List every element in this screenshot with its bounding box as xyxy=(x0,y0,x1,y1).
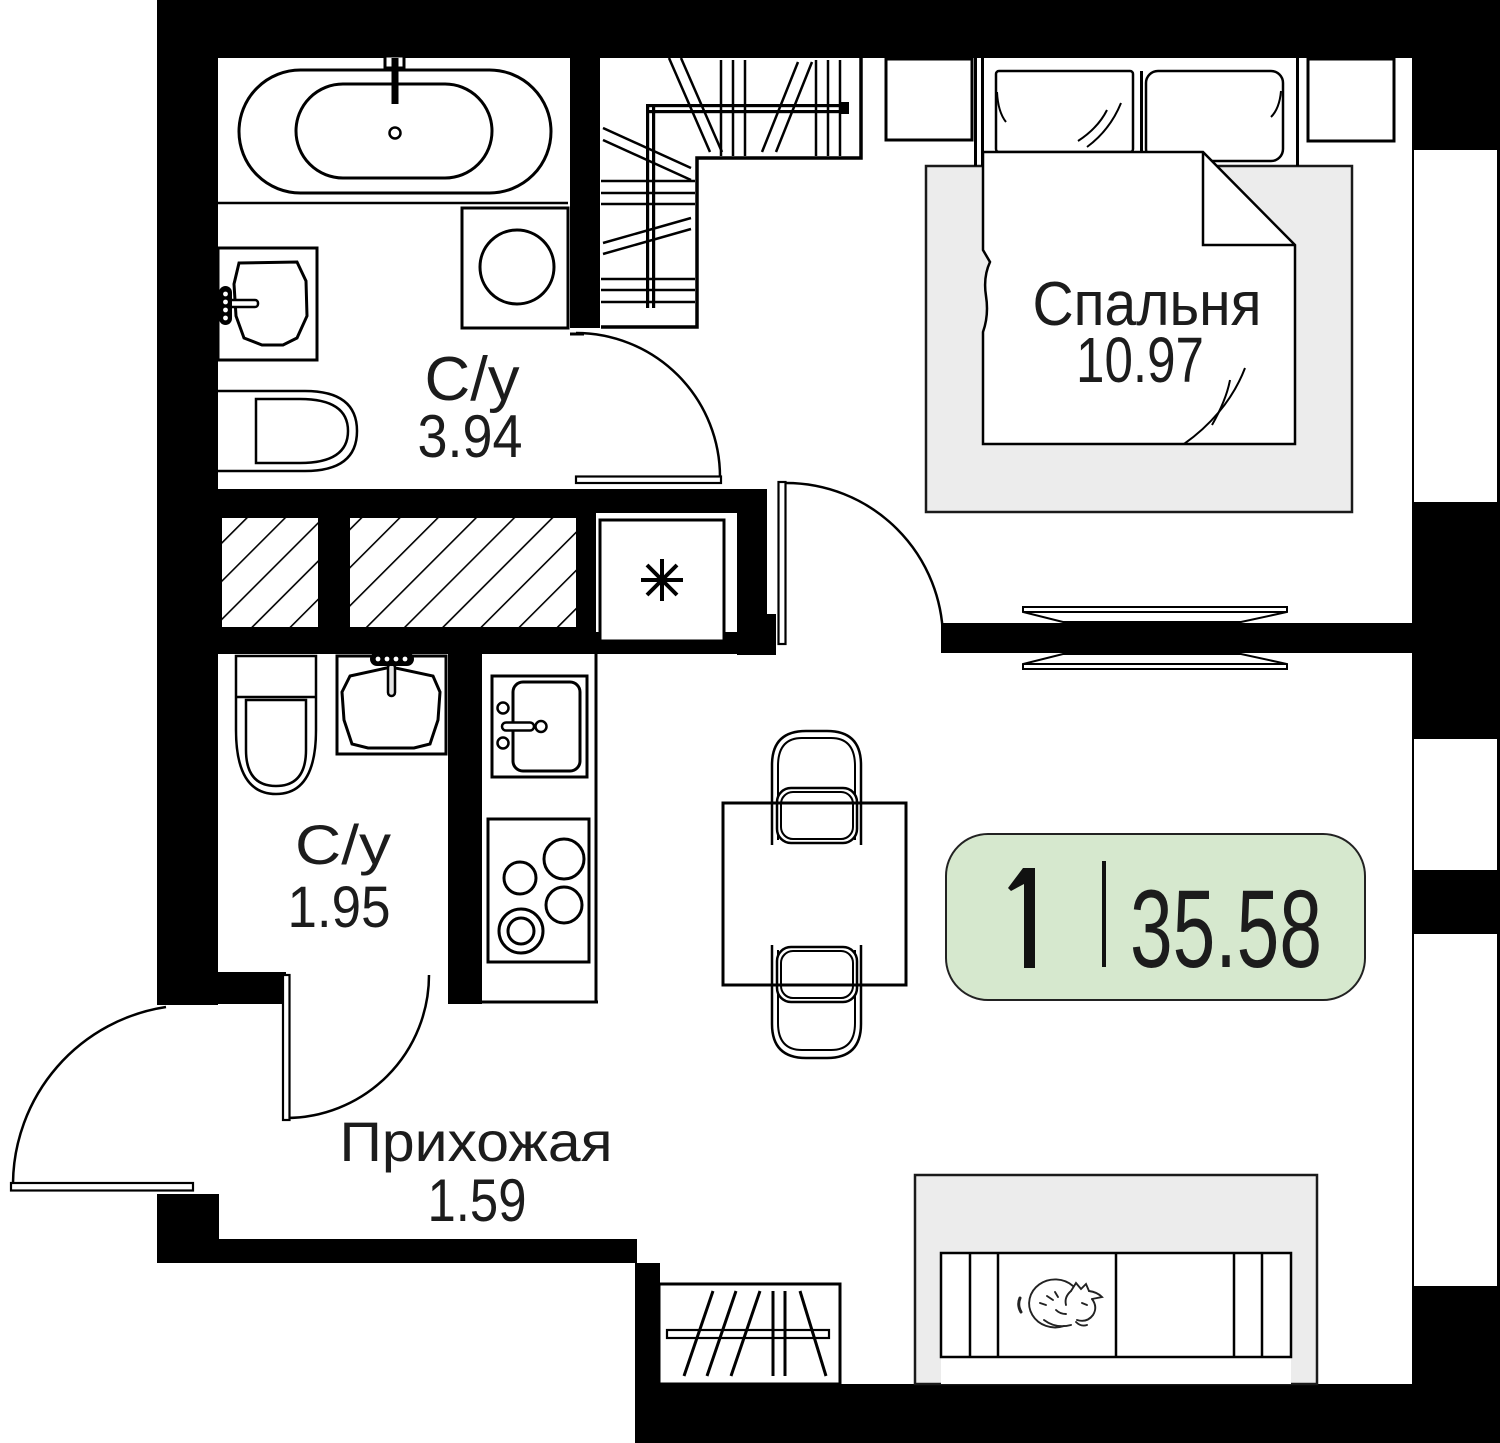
svg-text:35.58: 35.58 xyxy=(1130,868,1322,991)
svg-text:3.94: 3.94 xyxy=(418,403,523,470)
svg-text:Прихожая: Прихожая xyxy=(340,1110,613,1173)
svg-text:1.59: 1.59 xyxy=(428,1167,527,1234)
svg-text:С/у: С/у xyxy=(295,813,391,876)
svg-text:1.95: 1.95 xyxy=(288,875,391,940)
svg-text:10.97: 10.97 xyxy=(1076,324,1204,396)
